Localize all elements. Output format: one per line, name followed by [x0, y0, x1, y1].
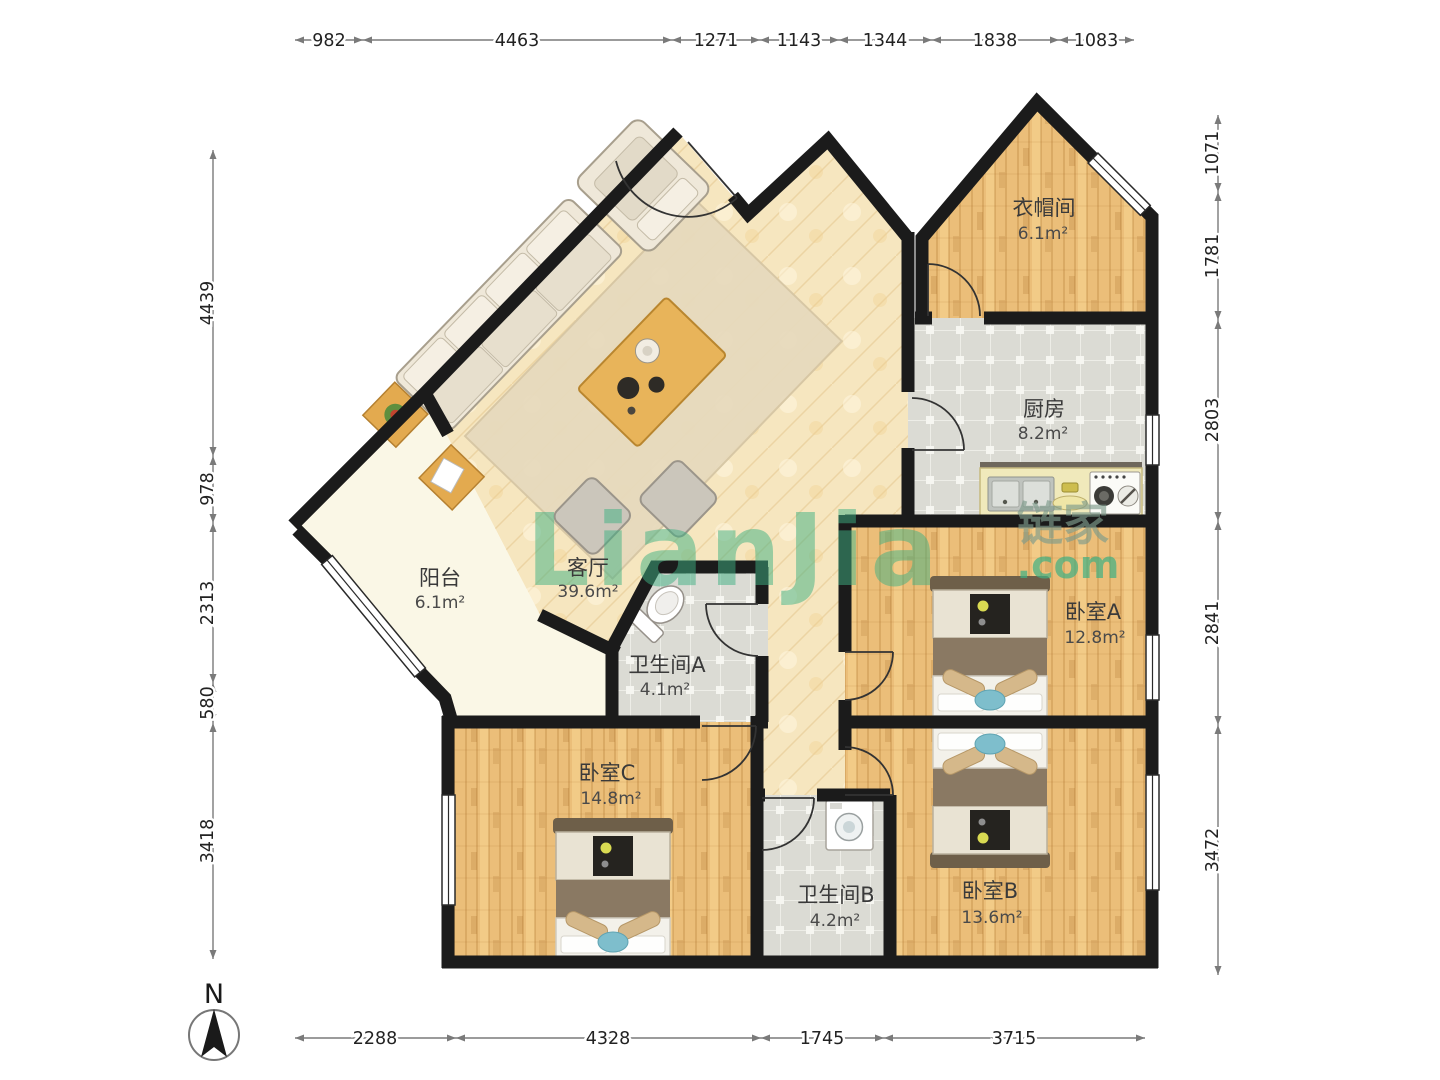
floor-plan-canvas: LianJia 链家 .com 衣帽间 6.1m² 厨房 8.2m² 客厅 39… [0, 0, 1440, 1080]
area-bathroomA: 4.1m² [640, 680, 690, 700]
area-cloakroom: 6.1m² [1018, 224, 1068, 244]
compass-label: N [204, 979, 224, 1010]
dim-value: 1071 [1203, 131, 1223, 176]
dim-value: 4439 [198, 281, 218, 326]
bed-icon [930, 576, 1050, 716]
area-living: 39.6m² [557, 582, 618, 602]
dim-value: 4463 [495, 31, 540, 51]
dim-value: 3418 [198, 819, 218, 864]
tray-icon [1062, 483, 1078, 492]
dim-value: 2841 [1203, 601, 1223, 646]
dim-value: 1781 [1203, 234, 1223, 279]
dim-value: 1143 [777, 31, 822, 51]
label-bedroomB: 卧室B [962, 879, 1018, 903]
label-living: 客厅 [567, 556, 609, 580]
dim-value: 580 [198, 686, 218, 719]
window-bedroomC [442, 795, 455, 905]
dim-value: 2803 [1203, 398, 1223, 443]
dim-value: 1344 [863, 31, 908, 51]
label-bathroomA: 卫生间A [628, 653, 706, 677]
watermark-tld: .com [1017, 543, 1120, 587]
dim-value: 2313 [198, 581, 218, 626]
dim-value: 978 [198, 472, 218, 505]
label-bedroomC: 卧室C [579, 761, 636, 785]
window-bedroomB [1146, 775, 1159, 890]
bed-icon [553, 818, 673, 958]
label-bathroomB: 卫生间B [797, 883, 874, 907]
washing-machine-icon [826, 800, 873, 850]
dim-value: 2288 [353, 1029, 398, 1049]
area-bathroomB: 4.2m² [810, 911, 860, 931]
dim-value: 982 [312, 31, 345, 51]
label-balcony: 阳台 [419, 566, 461, 590]
dim-value: 3715 [992, 1029, 1037, 1049]
bed-icon [930, 728, 1050, 868]
dim-value: 1083 [1074, 31, 1119, 51]
label-kitchen: 厨房 [1023, 397, 1065, 421]
label-bedroomA: 卧室A [1065, 600, 1122, 624]
dim-value: 4328 [586, 1029, 631, 1049]
area-kitchen: 8.2m² [1018, 424, 1068, 444]
area-bedroomB: 13.6m² [961, 908, 1022, 928]
window-bedroomA [1146, 635, 1159, 700]
window-kitchen [1146, 415, 1159, 465]
dim-value: 1271 [694, 31, 739, 51]
area-bedroomA: 12.8m² [1064, 628, 1125, 648]
dim-value: 1838 [973, 31, 1018, 51]
dim-value: 1745 [800, 1029, 845, 1049]
dim-value: 3472 [1203, 828, 1223, 873]
floor-plan-page: LianJia 链家 .com 衣帽间 6.1m² 厨房 8.2m² 客厅 39… [0, 0, 1440, 1080]
area-bedroomC: 14.8m² [580, 789, 641, 809]
label-cloakroom: 衣帽间 [1013, 196, 1076, 220]
area-balcony: 6.1m² [415, 593, 465, 613]
